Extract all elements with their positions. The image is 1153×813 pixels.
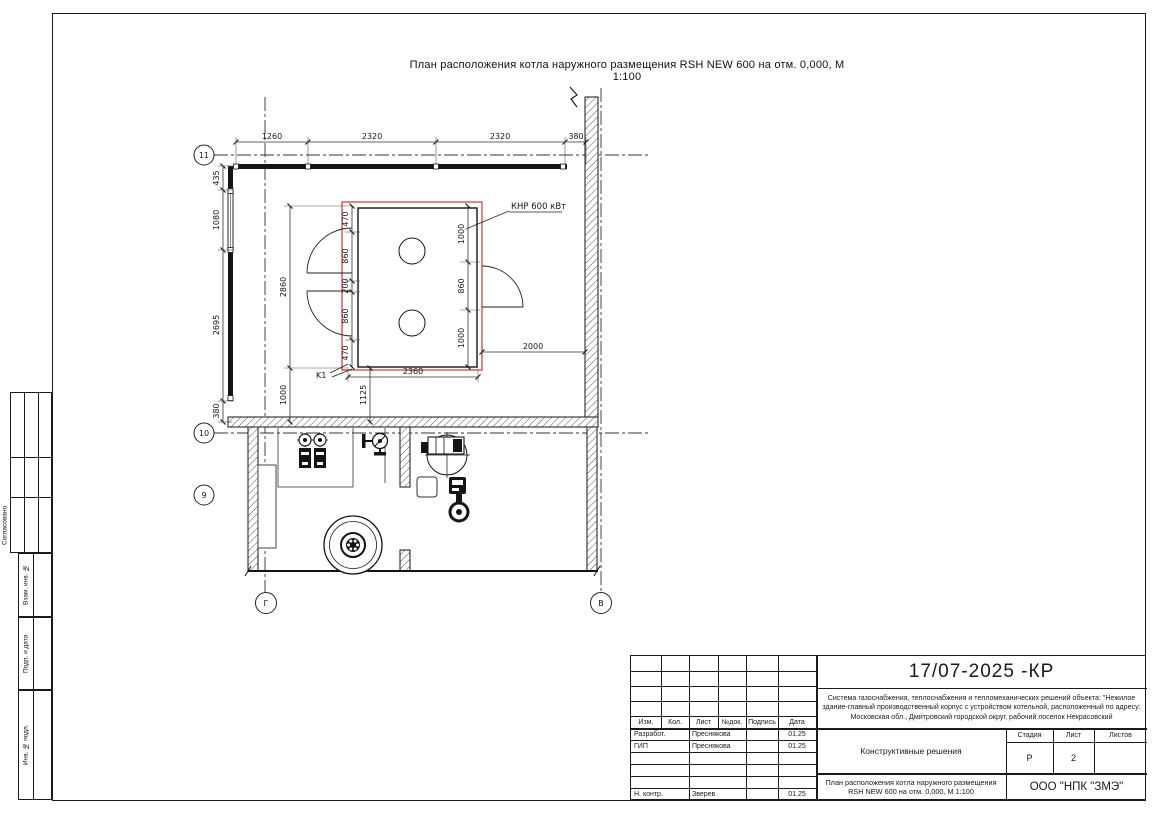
header-podpis: Подпись — [746, 716, 778, 728]
inv-label: Инв. № подл. — [19, 691, 33, 799]
approval-grid — [10, 392, 52, 553]
signature-row-name: Зверев — [689, 788, 746, 801]
signature-row-date: 01.25 — [778, 728, 816, 740]
divider — [38, 393, 39, 552]
sheets-header: Листов — [1094, 728, 1147, 742]
drawing-sheet: 11 10 9 Г В — [0, 0, 1153, 813]
divider — [33, 618, 34, 689]
inv-box: Инв. № подл. — [18, 690, 52, 800]
divider — [33, 554, 34, 616]
sheet-header: Лист — [1053, 728, 1094, 742]
divider — [631, 686, 816, 687]
signature-row-name: Преснякова — [689, 728, 746, 740]
divider — [24, 393, 25, 552]
header-data: Дата — [778, 716, 816, 728]
signature-row-role: Разработ. — [631, 728, 689, 740]
divider — [33, 691, 34, 799]
company-name: ООО "НПК "ЗМЭ" — [1006, 773, 1147, 801]
divider — [631, 671, 816, 672]
stage-value: Р — [1006, 742, 1053, 773]
podp-box: Подп. и дата — [18, 617, 52, 690]
divider — [631, 701, 816, 702]
signature-row-date: 01.25 — [778, 740, 816, 752]
divider — [631, 764, 816, 765]
divider — [11, 497, 51, 498]
section-title: Конструктивные решения — [816, 728, 1006, 773]
sheet-number: 2 — [1053, 742, 1094, 773]
divider — [11, 457, 51, 458]
podp-label: Подп. и дата — [19, 618, 33, 689]
header-kol: Кол. — [661, 716, 689, 728]
sheets-total — [1094, 742, 1147, 773]
divider — [631, 776, 816, 777]
stage-header: Стадия — [1006, 728, 1053, 742]
divider — [631, 752, 816, 753]
header-ndok: №док. — [718, 716, 746, 728]
plan-title: План расположения котла наружного размещ… — [397, 59, 857, 83]
signature-row-name: Преснякова — [689, 740, 746, 752]
header-list: Лист — [689, 716, 718, 728]
approved-label: Согласовано — [0, 497, 10, 553]
signature-row-date: 01.25 — [778, 788, 816, 801]
vzam-box: Взам. инв. № — [18, 553, 52, 617]
signature-row-role: ГИП — [631, 740, 689, 752]
title-block: Изм. Кол. Лист №док. Подпись Дата Разраб… — [630, 655, 1146, 800]
project-description: Система газоснабжения, теплоснабжения и … — [816, 688, 1147, 728]
header-izm: Изм. — [631, 716, 661, 728]
doc-number: 17/07-2025 -КР — [816, 656, 1147, 688]
vzam-label: Взам. инв. № — [19, 554, 33, 616]
signature-row-role: Н. контр. — [631, 788, 689, 801]
sheet-title: План расположения котла наружного размещ… — [816, 773, 1006, 801]
